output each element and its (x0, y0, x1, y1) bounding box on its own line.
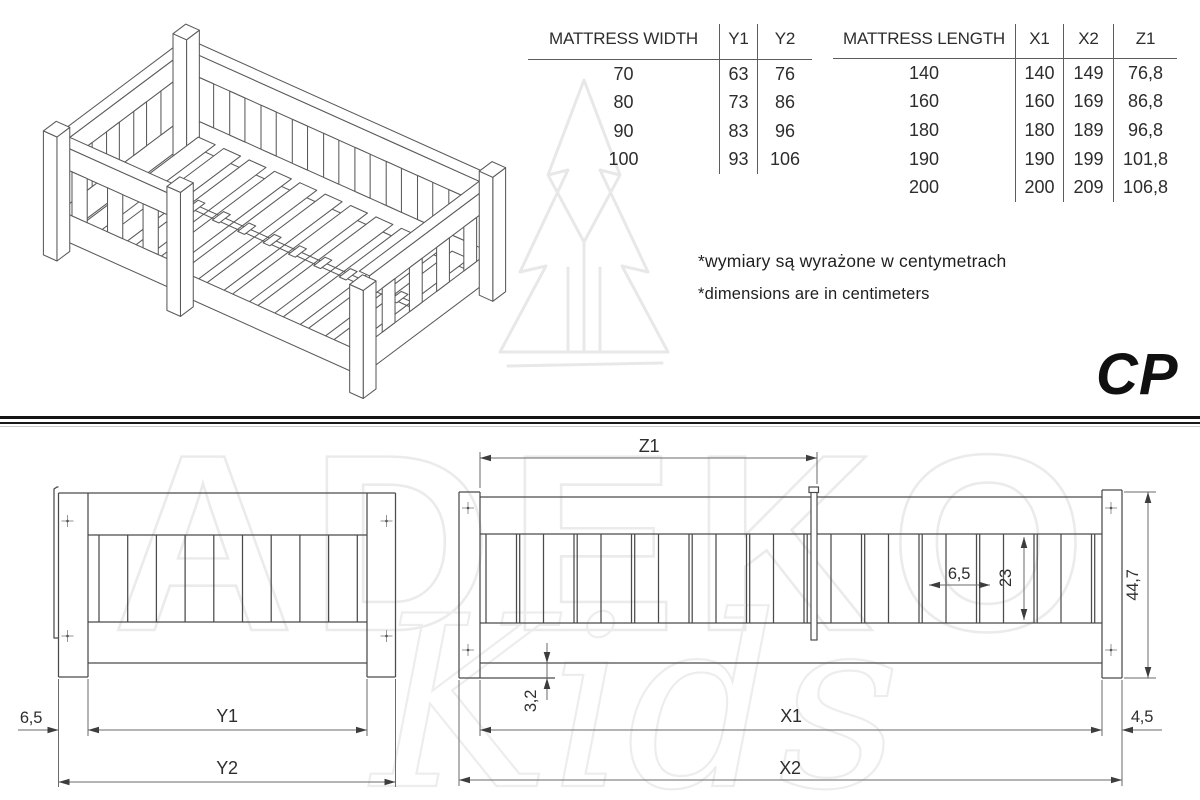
rail-slat (382, 279, 395, 333)
dimension-arrow (48, 727, 59, 734)
post (167, 186, 181, 316)
side-rail-edge (54, 487, 59, 638)
rail-slat (464, 217, 477, 271)
table-cell: 180 (833, 116, 1015, 145)
dim-label-floor-gap: 3,2 (522, 690, 540, 712)
table-header-cell: Y1 (719, 24, 757, 60)
post (479, 171, 493, 301)
rail-slat (108, 188, 123, 239)
note-pl: *wymiary są wyrażone w centymetrach (698, 251, 1006, 272)
section-divider (0, 416, 1200, 419)
table-cell: 63 (719, 60, 757, 89)
table-cell: 96 (757, 117, 812, 146)
center-divider-cap (809, 487, 819, 493)
table-cell: 100 (528, 146, 719, 175)
rail-slat (161, 81, 174, 135)
rail-slat (230, 91, 245, 142)
table-cell: 169 (1063, 88, 1113, 117)
rail-slat (324, 133, 339, 184)
dim-label-x1: X1 (780, 706, 802, 726)
table-header-cell: MATTRESS WIDTH (528, 24, 719, 60)
screw-mark-dot (385, 520, 388, 523)
table-cell: 86,8 (1113, 88, 1177, 117)
dim-label-x2: X2 (779, 758, 801, 778)
table-cell: 190 (833, 145, 1015, 174)
center-divider-bar (811, 492, 817, 640)
dimension-arrow (1122, 727, 1133, 734)
post (180, 183, 193, 317)
table-cell: 106,8 (1113, 173, 1177, 202)
post (173, 34, 187, 164)
dim-label-z1: Z1 (639, 436, 660, 456)
dimension-arrow (1111, 777, 1122, 784)
screw-mark-dot (1110, 507, 1113, 510)
table-cell: 200 (833, 173, 1015, 202)
screw-mark-dot (66, 520, 69, 523)
post (57, 127, 70, 261)
dim-label-y2: Y2 (216, 758, 238, 778)
table-cell: 160 (833, 88, 1015, 117)
table-header-cell: X1 (1015, 24, 1063, 59)
table-cell: 209 (1063, 173, 1113, 202)
rail-slat (198, 77, 213, 128)
dimension-arrow (1145, 667, 1152, 678)
mattress-length-table: MATTRESS LENGTHX1X2Z114014014976,8160160… (833, 24, 1177, 202)
dimension-arrow (1091, 727, 1102, 734)
post (43, 131, 57, 261)
dim-label-slat-width: 6,5 (948, 565, 970, 583)
rail-slat (72, 172, 87, 223)
table-cell: 80 (528, 89, 719, 118)
rail-slat (409, 258, 422, 312)
dimension-arrow (59, 779, 70, 786)
screw-mark-dot (467, 507, 470, 510)
dim-label-post-width: 4,5 (1131, 708, 1153, 726)
rail-slat (292, 119, 307, 170)
table-cell: 180 (1015, 116, 1063, 145)
table-cell: 76 (757, 60, 812, 89)
screw-mark-dot (1110, 649, 1113, 652)
product-code: CP (1096, 346, 1179, 404)
rail-slat (386, 161, 401, 212)
post (350, 284, 364, 398)
table-cell: 73 (719, 89, 757, 118)
table-cell: 86 (757, 89, 812, 118)
table-cell: 149 (1063, 59, 1113, 88)
table-cell: 160 (1015, 88, 1063, 117)
table-header-cell: Z1 (1113, 24, 1177, 59)
table-header-cell: MATTRESS LENGTH (833, 24, 1015, 59)
table-cell: 200 (1015, 173, 1063, 202)
table-cell: 90 (528, 117, 719, 146)
screw-mark-dot (385, 635, 388, 638)
section-divider-shadow (0, 426, 1200, 428)
table-header-cell: Y2 (757, 24, 812, 60)
dim-label-y1: Y1 (216, 706, 238, 726)
rail-slat (355, 147, 370, 198)
table-cell: 140 (1015, 59, 1063, 88)
table-cell: 189 (1063, 116, 1113, 145)
rail-slat (261, 105, 276, 156)
table-cell: 106 (757, 146, 812, 175)
dimension-arrow (356, 727, 367, 734)
table-cell: 96,8 (1113, 116, 1177, 145)
mattress-width-table: MATTRESS WIDTHY1Y27063768073869083961009… (528, 24, 812, 174)
table-cell: 83 (719, 117, 757, 146)
screw-mark-dot (66, 635, 69, 638)
rail-slat (134, 102, 147, 156)
isometric-bed-drawing (43, 24, 505, 398)
table-cell: 190 (1015, 145, 1063, 174)
table-cell: 101,8 (1113, 145, 1177, 174)
technical-drawing-page: ADEKO Kids 6,5 Y1 Y2 Z1 6,5 23 3,2 X1 4,… (0, 0, 1200, 800)
dimension-arrow (1145, 492, 1152, 503)
table-cell: 199 (1063, 145, 1113, 174)
rail-slat (437, 238, 450, 292)
dim-label-slat-height: 23 (997, 569, 1015, 587)
rail-slat (143, 204, 158, 255)
screw-mark-dot (467, 649, 470, 652)
dim-label-total-height: 44,7 (1124, 569, 1142, 600)
note-en: *dimensions are in centimeters (698, 285, 930, 304)
table-cell: 140 (833, 59, 1015, 88)
table-cell: 93 (719, 146, 757, 175)
dimension-arrow (88, 727, 99, 734)
dim-label-front-offset: 6,5 (20, 709, 42, 727)
table-header-cell: X2 (1063, 24, 1113, 59)
table-cell: 76,8 (1113, 59, 1177, 88)
table-cell: 70 (528, 60, 719, 89)
post (493, 168, 506, 302)
post (363, 281, 376, 399)
section-divider-line2 (0, 422, 1200, 425)
